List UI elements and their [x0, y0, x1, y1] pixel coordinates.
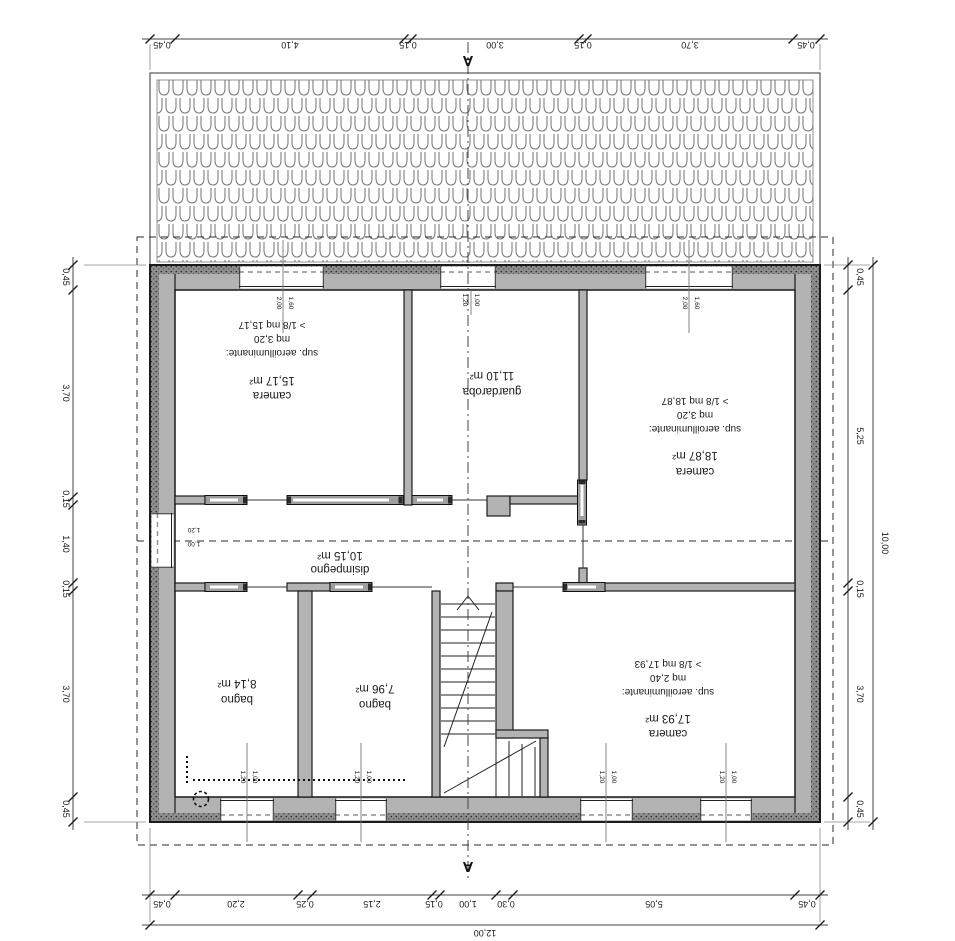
room-label-camera-e: camera 18,87 m² sup. aeroilluminante: mq… — [649, 395, 741, 477]
room-vent-line: > 1/8 mq 17,93 — [634, 658, 701, 669]
room-vent-line: sup. aeroilluminante: — [622, 686, 714, 697]
room-vent-line: mq 3,20 — [253, 333, 290, 344]
dim-label: 3,00 — [486, 40, 504, 50]
dim-label: 5,05 — [645, 899, 663, 909]
staircase — [441, 596, 536, 797]
window-tag: 1,60 — [287, 297, 294, 310]
window-camera-se-1 — [580, 799, 633, 821]
room-area: 7,96 m² — [355, 682, 394, 694]
window-tag: 1,00 — [473, 294, 480, 307]
wall-bagno-stair — [432, 591, 440, 797]
room-area: 17,93 m² — [645, 712, 691, 724]
room-label-bagno-w: bagno 8,14 m² — [217, 677, 256, 705]
dim-label: 3,70 — [855, 685, 865, 703]
wall-bagno-divider — [298, 591, 312, 797]
room-label-camera-se: camera 17,93 m² sup. aeroilluminante: mq… — [622, 658, 714, 739]
dim-label: 1,40 — [61, 535, 71, 553]
window-disimpegno — [152, 513, 174, 568]
room-vent-line: sup. aeroilluminante: — [226, 347, 318, 358]
dim-bottom: 0,45 2,20 0,25 2,15 0,15 1,00 0,30 5,05 … — [142, 891, 828, 939]
dim-left: 0,45 3,70 0,15 1,40 0,15 3,70 0,45 — [61, 257, 78, 830]
window-tag: 1,20 — [598, 771, 605, 784]
window-tag: 1,00 — [365, 771, 372, 784]
window-camera-nw — [239, 267, 324, 289]
dim-label: 1,00 — [459, 899, 477, 909]
dim-label: 2,20 — [227, 899, 245, 909]
wall-stipple-right — [811, 265, 820, 822]
wall-winder-right — [540, 738, 548, 797]
floor-plan-canvas: A A 0,45 4,10 0,15 3,00 0,15 3, — [0, 0, 955, 941]
room-area: 18,87 m² — [672, 449, 718, 461]
window-tag: 1,00 — [730, 771, 737, 784]
window-size-tags: 2,00 1,60 1,20 1,00 2,00 1,60 1,20 1,00 … — [187, 294, 737, 784]
room-vent-line: mq 2,40 — [649, 672, 686, 683]
section-marker-top: A — [462, 52, 473, 69]
room-name: bagno — [359, 698, 391, 710]
dim-label: 2,15 — [363, 899, 381, 909]
dim-label: 0,15 — [574, 40, 592, 50]
window-tag: 1,00 — [251, 771, 258, 784]
dim-label: 0,45 — [61, 268, 71, 286]
stair-winder — [444, 612, 536, 797]
dim-label: 0,15 — [425, 899, 443, 909]
dim-label: 3,70 — [681, 40, 699, 50]
dim-label: 0,45 — [855, 800, 865, 818]
wall-jog-guardaroba — [487, 496, 510, 516]
room-area: 10,15 m² — [317, 549, 363, 561]
dim-label: 4,10 — [281, 40, 299, 50]
wall-stair-right — [496, 591, 513, 738]
room-name: disimpegno — [311, 563, 370, 575]
room-vent-line: sup. aeroilluminante: — [649, 423, 741, 434]
dim-label: 0,45 — [153, 899, 171, 909]
dim-label: 0,45 — [798, 899, 816, 909]
room-name: camera — [648, 727, 687, 739]
floor-plan-drawing: A A 0,45 4,10 0,15 3,00 0,15 3, — [0, 0, 955, 941]
dim-label: 0,45 — [855, 268, 865, 286]
window-tag: 1,00 — [610, 771, 617, 784]
dim-label: 0,15 — [61, 580, 71, 598]
room-area: 15,17 m² — [249, 374, 295, 386]
room-name: camera — [252, 389, 291, 401]
dim-label: 5,25 — [855, 427, 865, 445]
room-vent-line: mq 3,20 — [676, 409, 713, 420]
dim-label: 0,25 — [296, 899, 314, 909]
door-camera-nw — [205, 496, 403, 505]
room-label-guardaroba: guardaroba 11,10 m² — [462, 369, 521, 397]
room-vent-line: > 1/8 mq 15,17 — [238, 319, 305, 330]
dim-label: 0,45 — [797, 40, 815, 50]
dim-label: 3,70 — [61, 384, 71, 402]
wall-guardaroba-camera-e — [579, 290, 587, 480]
window-tag: 1,60 — [693, 297, 700, 310]
room-name: bagno — [221, 693, 253, 705]
dim-label: 0,45 — [61, 800, 71, 818]
dim-label: 0,30 — [497, 899, 515, 909]
dim-label: 0,15 — [399, 40, 417, 50]
room-label-bagno-c: bagno 7,96 m² — [355, 682, 394, 710]
section-marker-bottom: A — [462, 858, 473, 875]
dim-label: 0,45 — [153, 40, 171, 50]
door-camera-e — [578, 480, 587, 568]
dim-total-label: 12,00 — [474, 928, 497, 938]
room-label-camera-nw: camera 15,17 m² sup. aeroilluminante: mq… — [226, 319, 318, 401]
door-guardaroba — [412, 496, 487, 505]
dim-total-label: 10,00 — [880, 532, 890, 555]
room-area: 11,10 m² — [470, 369, 515, 381]
door-camera-se — [513, 583, 605, 592]
window-tag: 1,20 — [718, 771, 725, 784]
window-tag: 1,20 — [461, 294, 468, 307]
wall-camera-nw-guardaroba — [404, 290, 412, 505]
window-tag: 1,20 — [187, 526, 200, 533]
room-vent-line: > 1/8 mq 18,87 — [661, 395, 728, 406]
window-tag: 2,00 — [681, 297, 688, 310]
dim-label: 3,70 — [61, 685, 71, 703]
dim-label: 0,15 — [855, 580, 865, 598]
roof-tiles — [157, 80, 813, 262]
dim-right: 0,45 5,25 0,15 3,70 0,45 10,00 — [844, 257, 891, 830]
wall-winder-top — [496, 730, 548, 738]
dim-label: 0,15 — [61, 490, 71, 508]
dim-top: 0,45 4,10 0,15 3,00 0,15 3,70 0,45 — [142, 35, 828, 51]
window-tag: 2,00 — [275, 297, 282, 310]
door-bagno-w — [205, 583, 287, 592]
room-area: 8,14 m² — [217, 677, 256, 689]
window-tag: 1,20 — [353, 771, 360, 784]
room-name: guardaroba — [462, 385, 521, 397]
room-label-disimpegno: disimpegno 10,15 m² — [311, 549, 370, 575]
door-bagno-c — [330, 583, 432, 592]
room-name: camera — [675, 465, 714, 477]
window-tag: 1,20 — [239, 771, 246, 784]
window-tag: 1,00 — [187, 540, 200, 547]
